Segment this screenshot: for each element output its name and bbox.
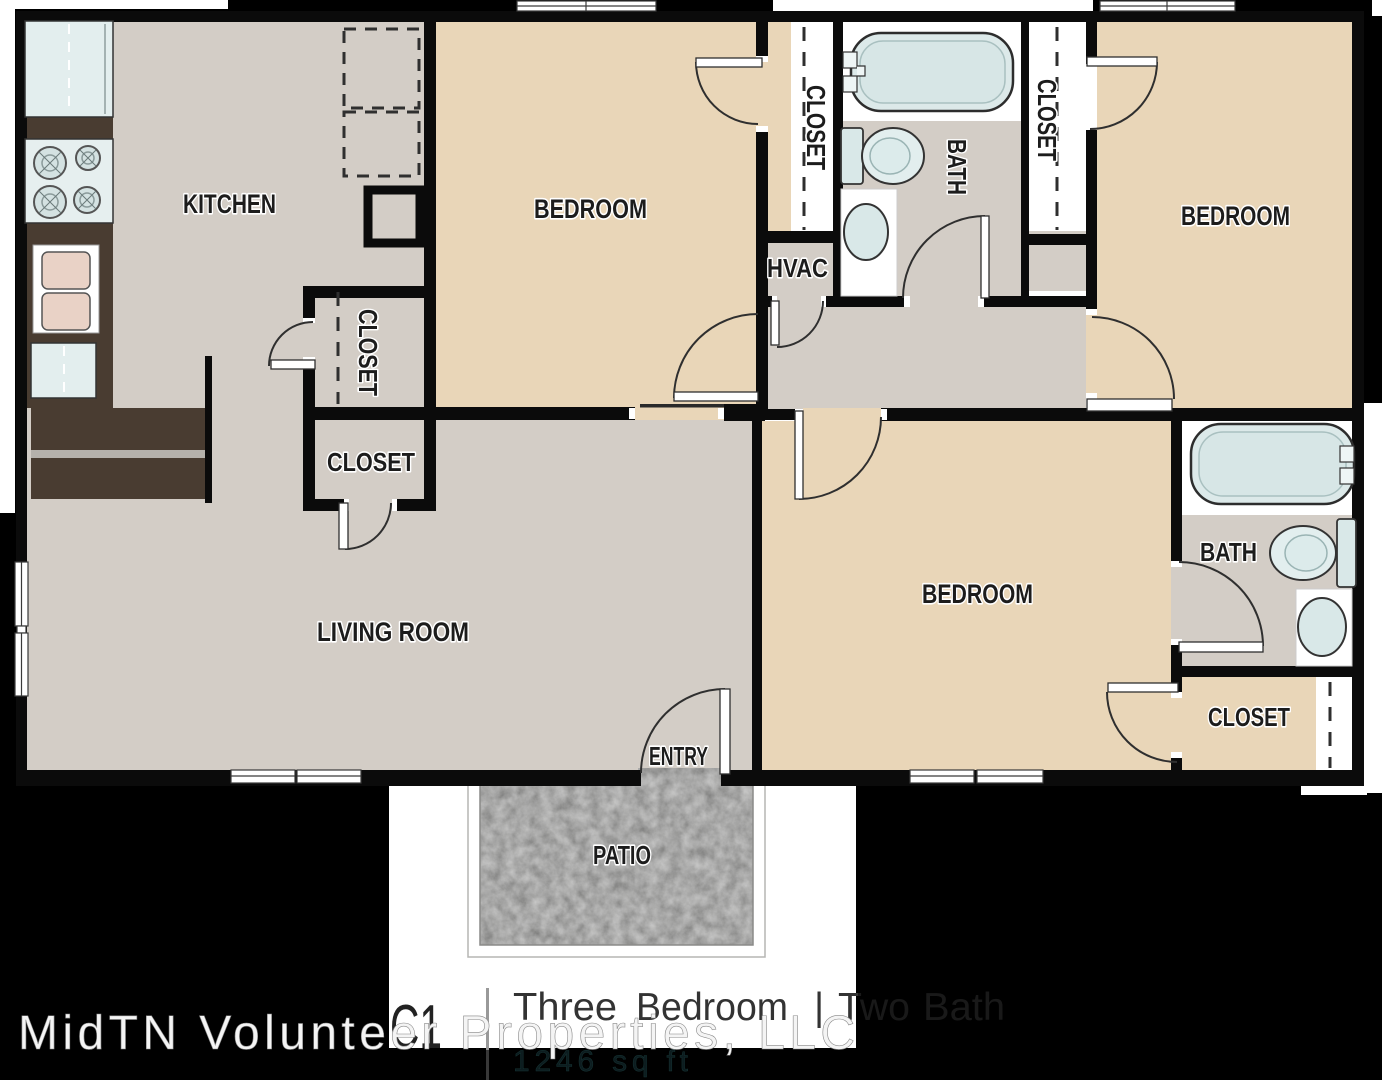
- svg-text:CLOSET: CLOSET: [801, 85, 831, 170]
- svg-text:LIVING ROOM: LIVING ROOM: [317, 617, 469, 647]
- svg-text:BEDROOM: BEDROOM: [534, 194, 647, 224]
- svg-text:CLOSET: CLOSET: [327, 447, 415, 477]
- svg-text:CLOSET: CLOSET: [353, 309, 383, 396]
- svg-text:KITCHEN: KITCHEN: [183, 189, 276, 219]
- svg-text:CLOSET: CLOSET: [1208, 702, 1290, 732]
- svg-text:BEDROOM: BEDROOM: [1181, 201, 1290, 231]
- svg-text:MidTN Volunteer Properties, LL: MidTN Volunteer Properties, LLC: [18, 1007, 855, 1060]
- svg-text:PATIO: PATIO: [593, 840, 651, 870]
- svg-text:ENTRY: ENTRY: [649, 741, 708, 771]
- svg-text:BEDROOM: BEDROOM: [922, 579, 1033, 609]
- svg-text:BATH: BATH: [942, 139, 972, 195]
- svg-text:CLOSET: CLOSET: [1032, 79, 1062, 161]
- svg-text:BATH: BATH: [1200, 537, 1257, 567]
- svg-text:HVAC: HVAC: [767, 253, 828, 283]
